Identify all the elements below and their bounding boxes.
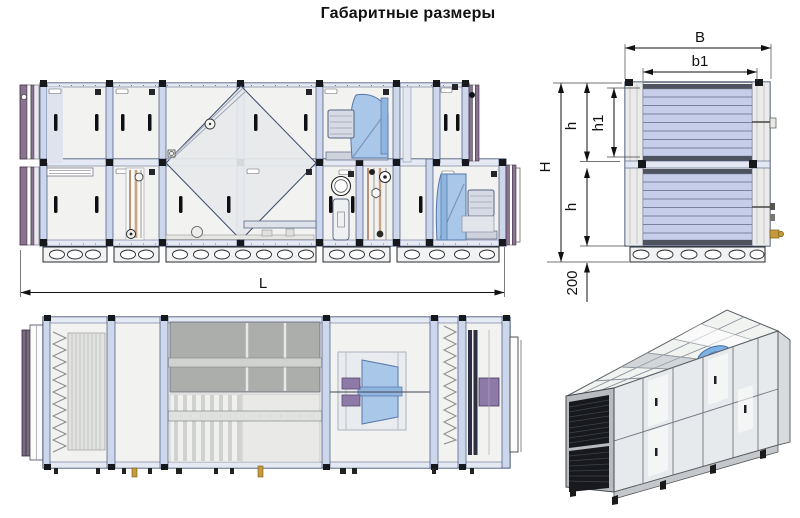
dim-label-section-height: h bbox=[563, 203, 580, 211]
upper-louver-damper bbox=[643, 84, 752, 161]
front-bottom-right-flange-icon bbox=[506, 165, 520, 245]
recovery-block-top bbox=[168, 322, 322, 462]
lower-louver-damper bbox=[643, 169, 752, 245]
plan-left-flange-icon bbox=[22, 325, 43, 460]
dim-label-inner-width: b1 bbox=[692, 53, 709, 70]
coil-block-top bbox=[68, 333, 105, 450]
isometric-view bbox=[566, 310, 790, 505]
dim-b1: b1 bbox=[643, 53, 757, 81]
front-view: L bbox=[20, 80, 520, 297]
coil-piping bbox=[126, 168, 144, 240]
dim-label-width: B bbox=[695, 29, 705, 46]
dim-h-bottom: h bbox=[563, 169, 627, 247]
dim-200: 200 bbox=[564, 263, 587, 302]
dim-label-length: L bbox=[259, 275, 267, 292]
dim-label-section-height: h bbox=[563, 122, 580, 130]
front-top-right-flange-icon bbox=[469, 85, 479, 161]
end-base-frame bbox=[630, 247, 765, 262]
dim-label-base-height: 200 bbox=[564, 270, 581, 295]
plan-right-flange-icon bbox=[510, 337, 521, 452]
dim-label-height: H bbox=[537, 162, 554, 173]
dim-label-inner-height: h1 bbox=[590, 115, 607, 132]
plan-view bbox=[22, 315, 521, 477]
side-fittings bbox=[770, 118, 784, 238]
end-view: B b1 H h h1 bbox=[537, 29, 784, 302]
front-base-frame bbox=[43, 247, 499, 262]
front-left-flange-icon bbox=[20, 85, 39, 245]
iso-louver-end bbox=[566, 388, 614, 492]
round-duct-port bbox=[332, 177, 351, 241]
dim-H: H bbox=[537, 83, 629, 262]
drawing-sheet: L bbox=[0, 0, 800, 518]
drawing-canvas: Габаритные размеры bbox=[0, 0, 800, 518]
